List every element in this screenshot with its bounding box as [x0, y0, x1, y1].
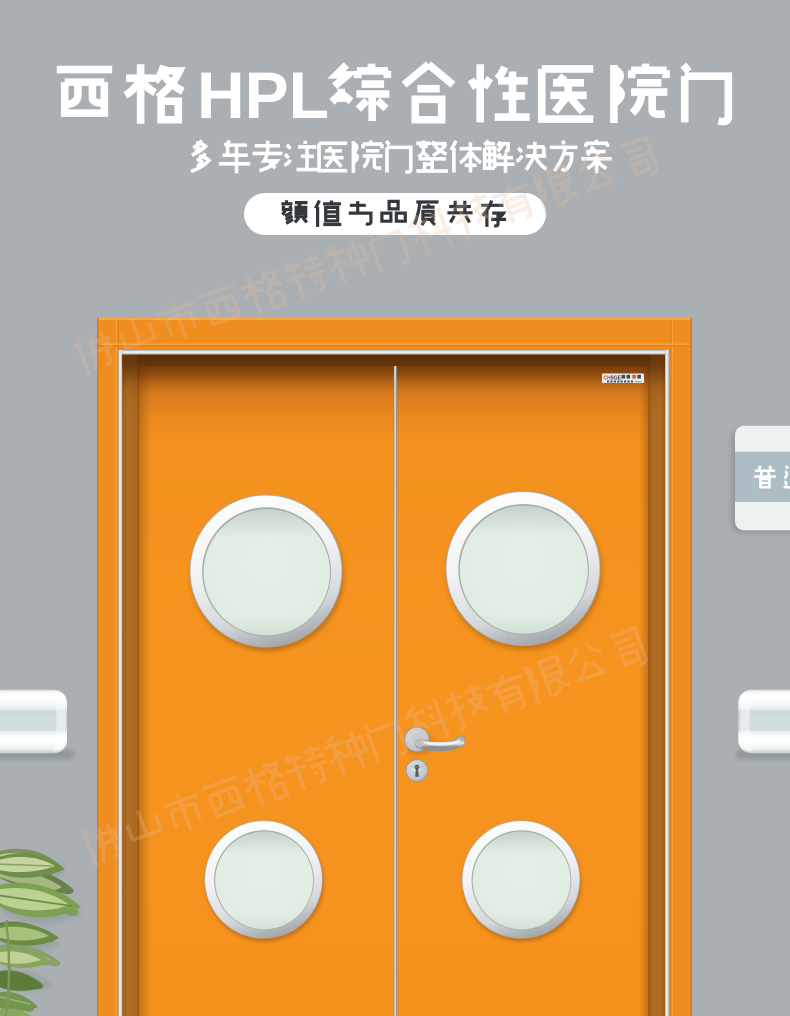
svg-text:HPL: HPL: [197, 58, 329, 132]
